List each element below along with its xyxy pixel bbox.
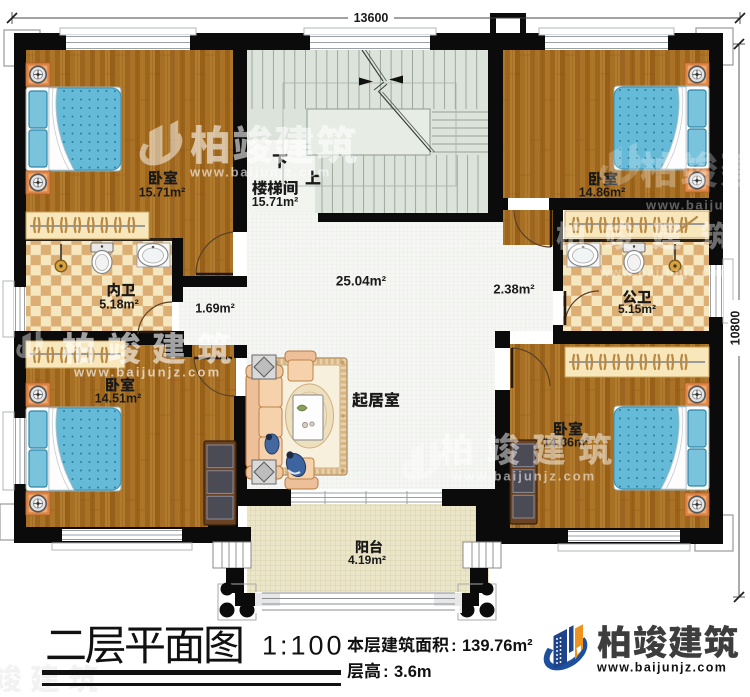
svg-text::: : <box>451 636 457 655</box>
svg-text:2.38m²: 2.38m² <box>493 282 535 297</box>
svg-text:15.71m²: 15.71m² <box>139 185 186 199</box>
svg-text:www.baijunjz.com: www.baijunjz.com <box>645 198 750 213</box>
svg-text:3.6m: 3.6m <box>394 663 432 681</box>
svg-text:4.19m²: 4.19m² <box>348 553 386 567</box>
svg-text:1.69m²: 1.69m² <box>195 301 235 315</box>
svg-text:15.71m²: 15.71m² <box>252 195 299 209</box>
svg-text:139.76m²: 139.76m² <box>462 637 533 655</box>
svg-text:1:100: 1:100 <box>262 631 345 661</box>
svg-text:5.15m²: 5.15m² <box>618 302 656 316</box>
svg-text:www.baijunjz.com: www.baijunjz.com <box>596 660 727 674</box>
svg-text:13600: 13600 <box>354 11 389 25</box>
svg-text:www.baijunjz.com: www.baijunjz.com <box>189 165 331 180</box>
svg-text:www.baijunjz.com: www.baijunjz.com <box>599 265 732 279</box>
svg-text:www.baijunjz.com: www.baijunjz.com <box>73 365 221 380</box>
svg-text:www.baijunjz.com: www.baijunjz.com <box>451 469 596 484</box>
svg-text::: : <box>383 662 389 681</box>
svg-text:25.04m²: 25.04m² <box>336 274 387 289</box>
svg-text:10800: 10800 <box>728 311 742 346</box>
svg-text:14.86m²: 14.86m² <box>579 185 626 199</box>
svg-text:5.18m²: 5.18m² <box>99 297 139 311</box>
svg-text:14.51m²: 14.51m² <box>95 391 142 405</box>
